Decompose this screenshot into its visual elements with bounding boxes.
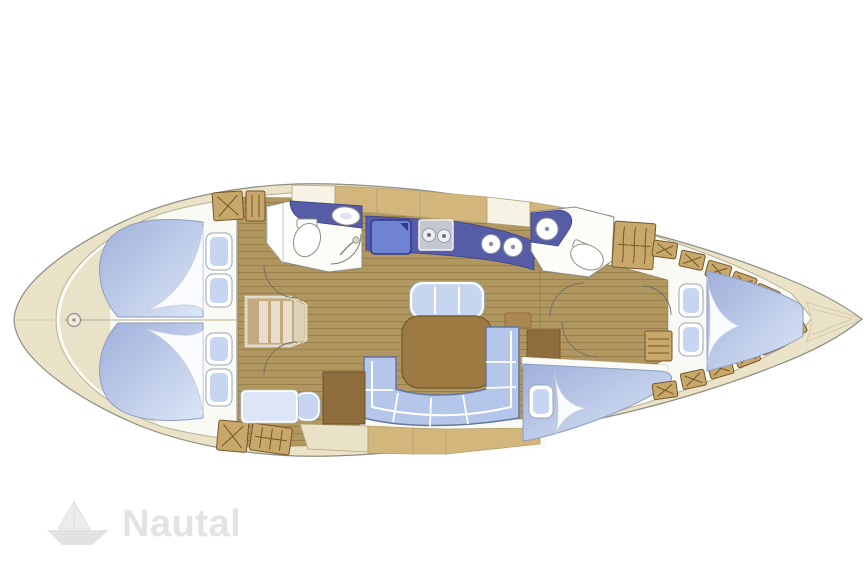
pillow — [206, 369, 232, 406]
storage-box — [527, 330, 560, 360]
deck-cell — [487, 197, 530, 227]
burner-center — [442, 234, 446, 238]
side-cabinet — [505, 313, 531, 328]
step-tread — [259, 301, 268, 343]
sink-drain — [545, 227, 549, 231]
shelf-locker — [612, 221, 656, 270]
deck-locker-cell — [420, 191, 487, 223]
storage-locker — [652, 240, 678, 259]
watermark-text: Nautal — [122, 503, 241, 546]
sailboat-layout-drawing — [0, 0, 868, 578]
louvered-locker — [249, 423, 292, 455]
burner-center — [427, 233, 431, 237]
nav-seat — [296, 393, 319, 420]
step-tread — [294, 301, 304, 343]
pillow — [206, 333, 232, 365]
sink-drain — [489, 242, 493, 246]
head-bathroom-forward — [531, 207, 614, 277]
deck-locker-cell — [368, 426, 413, 454]
storage-locker — [652, 381, 678, 400]
stern-fitting-center — [72, 318, 75, 321]
pillow — [529, 385, 553, 418]
bottom-deck-cells — [368, 426, 540, 454]
storage-locker — [212, 191, 244, 221]
pillow — [679, 323, 703, 356]
yacht-floorplan-image: Nautal — [0, 0, 868, 578]
nautal-watermark: Nautal — [46, 500, 241, 548]
step-tread — [283, 301, 292, 343]
shelf-locker — [246, 191, 265, 221]
side-berth-cushion — [242, 391, 297, 422]
pillow — [206, 274, 232, 307]
salon-table — [402, 316, 492, 388]
storage-locker — [216, 420, 249, 453]
deck-cell — [300, 424, 368, 452]
salon-bench — [411, 283, 483, 318]
boat-hull — [47, 530, 109, 545]
deck-locker-cell — [377, 188, 420, 217]
pillow — [206, 233, 232, 270]
paper-boat-icon — [46, 500, 110, 548]
companionway-steps — [246, 297, 306, 346]
step-tread — [271, 301, 280, 343]
entry-step — [645, 331, 672, 361]
nav-chart-table — [323, 372, 365, 424]
deck-locker-cell — [413, 428, 446, 454]
sink-drain — [511, 245, 515, 249]
pillow — [679, 284, 703, 317]
shower-head-icon — [353, 237, 359, 243]
